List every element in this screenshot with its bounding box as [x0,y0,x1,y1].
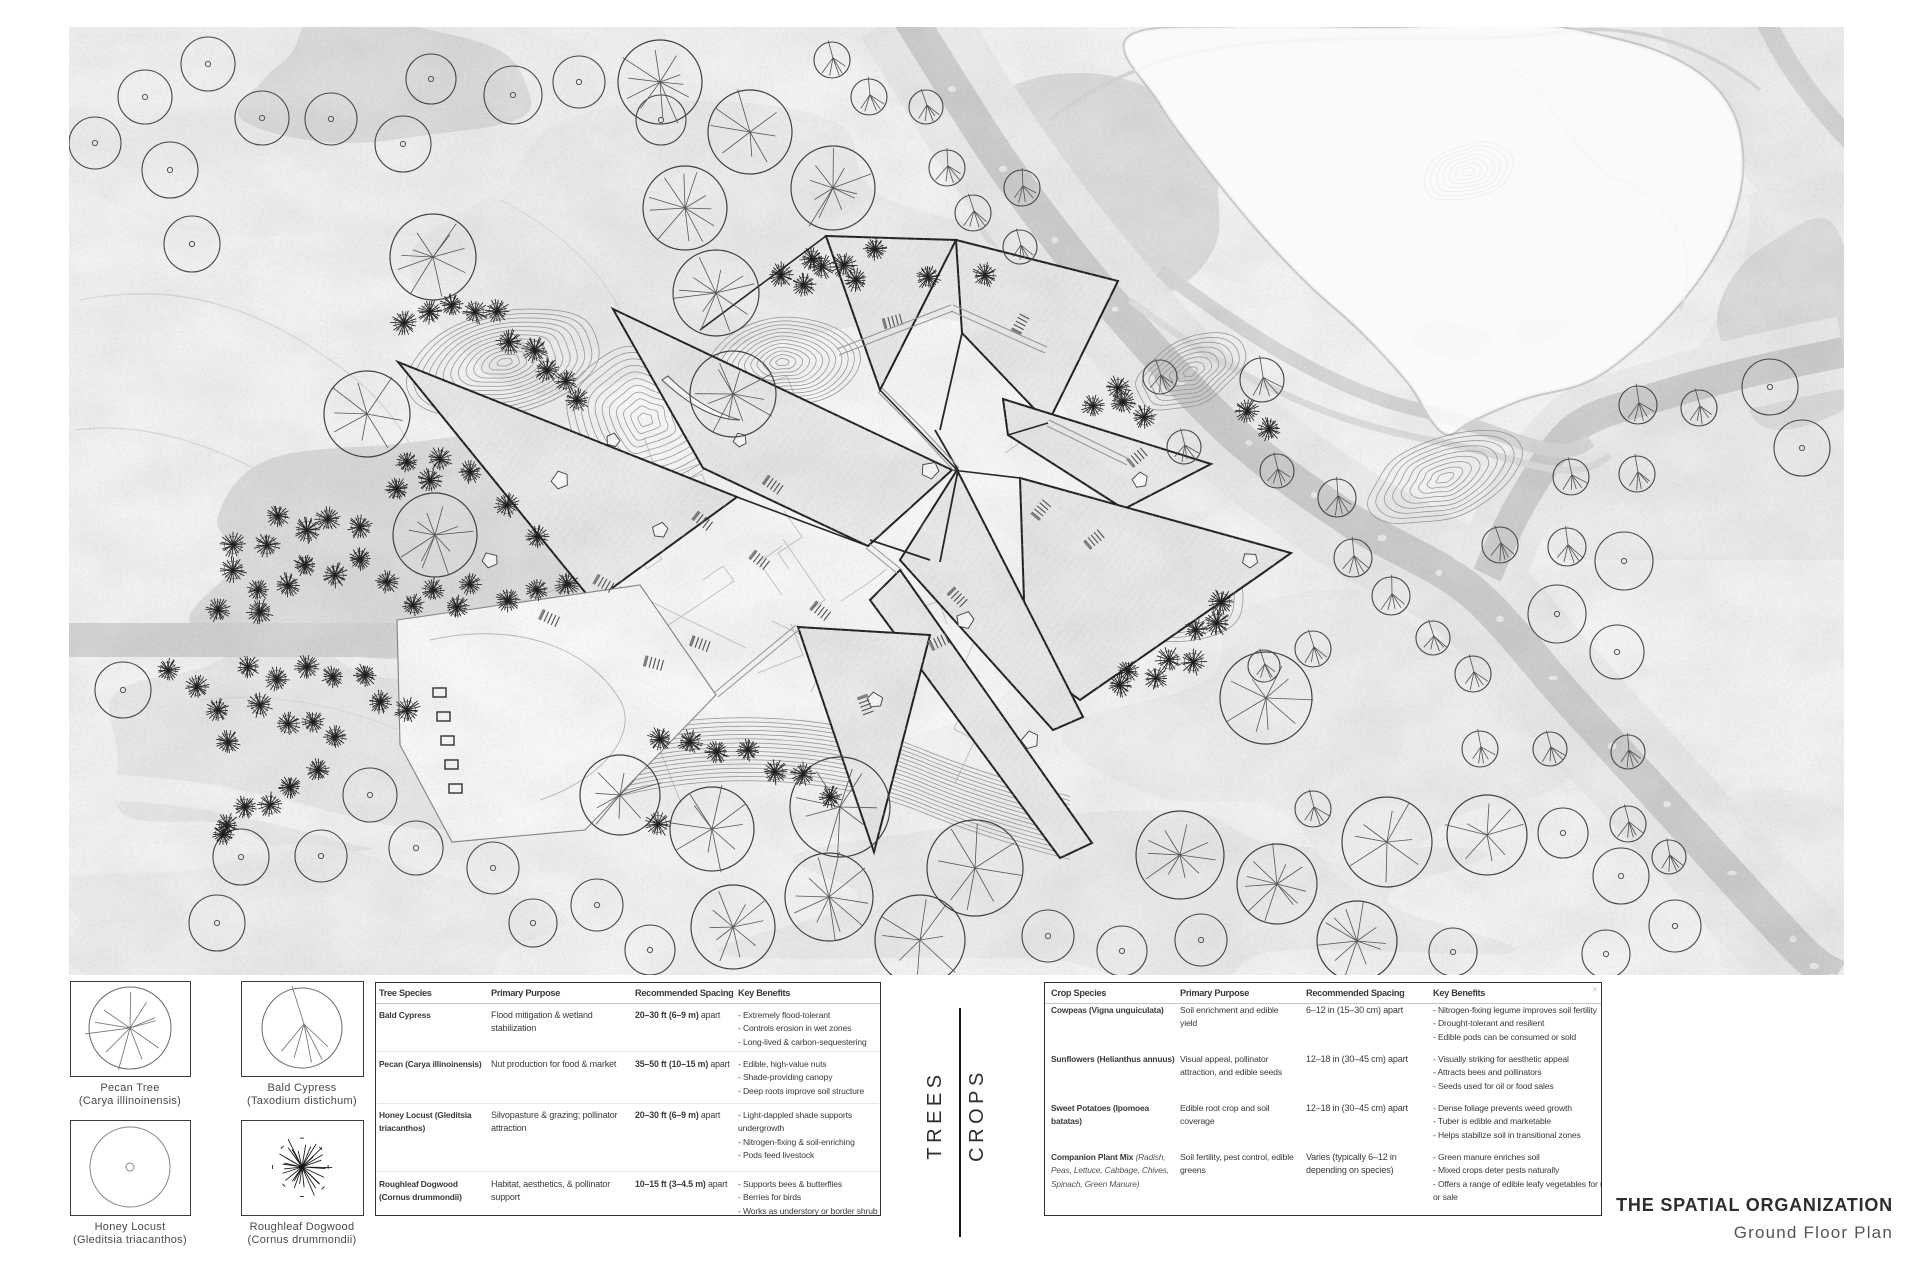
svg-text:CROPS: CROPS [966,1068,988,1162]
svg-text:TREES: TREES [924,1070,946,1159]
